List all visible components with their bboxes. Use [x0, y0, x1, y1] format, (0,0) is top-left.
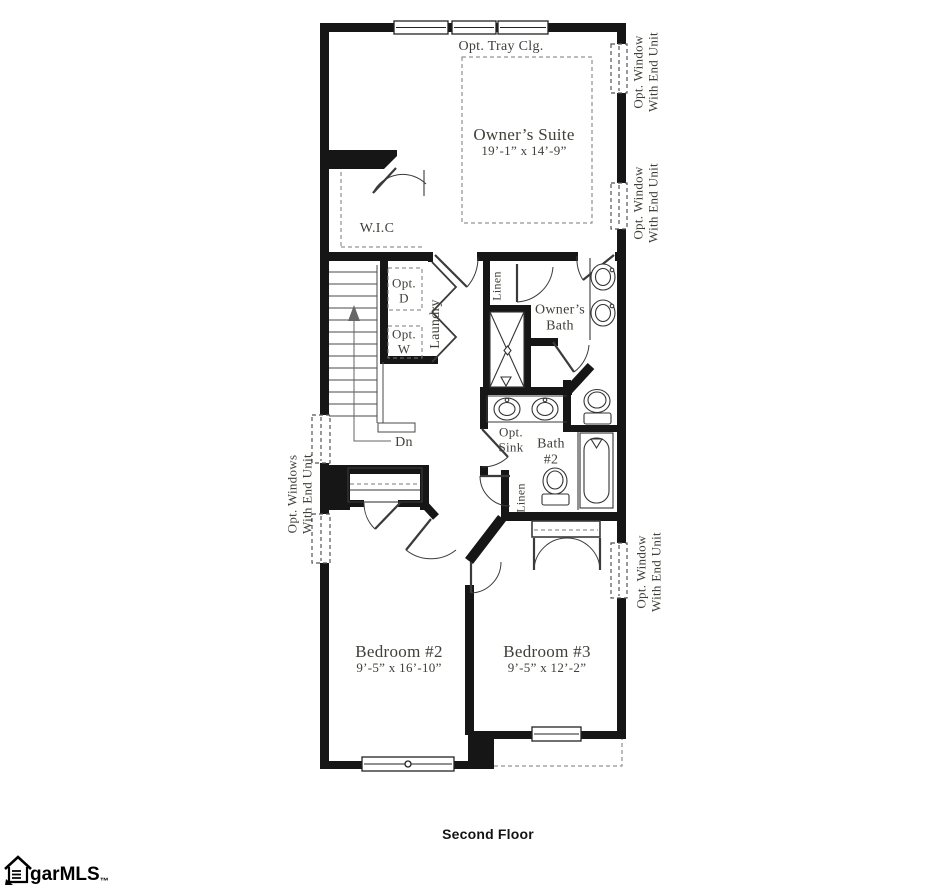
label-line: Opt. [392, 276, 416, 291]
opt-dryer-label: Opt. D [392, 276, 416, 305]
label-line: D [392, 291, 416, 306]
label-line: Opt. Window [634, 532, 649, 612]
room-name: Bedroom #3 [503, 642, 591, 661]
stairs-down-label: Dn [395, 435, 413, 451]
owners-suite-label: Owner’s Suite 19’-1” x 14’-9” [473, 125, 574, 159]
label-line: Opt. Window [631, 32, 646, 112]
owners-bath-sinks [591, 264, 615, 326]
bath2-sinks [494, 398, 558, 420]
bath2-label: Bath #2 [537, 436, 565, 467]
label-line: Owner’s [535, 302, 585, 318]
label-line: #2 [537, 452, 565, 468]
mls-brand-text: garMLS [30, 864, 100, 886]
room-dims: 9’-5” x 16’-10” [355, 661, 443, 676]
opt-window-right-top-label: Opt. Window With End Unit [631, 32, 660, 112]
room-dims: 19’-1” x 14’-9” [473, 144, 574, 159]
owners-bath-label: Owner’s Bath [535, 302, 585, 333]
floor-plan-page: Opt. Tray Clg. Owner’s Suite 19’-1” x 14… [0, 0, 937, 889]
floor-plan-drawing [0, 0, 937, 889]
owners-bath-toilet [584, 390, 611, 425]
opt-sink-label: Opt. Sink [498, 425, 523, 454]
shower [490, 312, 524, 387]
label-line: Opt. [392, 327, 416, 342]
linen-lower-label: Linen [514, 483, 527, 513]
opt-washer-label: Opt. W [392, 327, 416, 356]
label-line: Opt. Window [631, 163, 646, 243]
label-line: With End Unit [300, 454, 315, 534]
bedroom3-label: Bedroom #3 9’-5” x 12’-2” [503, 642, 591, 676]
bedroom2-label: Bedroom #2 9’-5” x 16’-10” [355, 642, 443, 676]
bath2-toilet [542, 468, 569, 505]
room-name: Owner’s Suite [473, 125, 574, 144]
room-name: Bedroom #2 [355, 642, 443, 661]
label-line: Opt. [498, 425, 523, 440]
laundry-label: Laundry [428, 299, 444, 349]
label-line: Sink [498, 440, 523, 455]
room-dims: 9’-5” x 12’-2” [503, 661, 591, 676]
tray-ceiling-label: Opt. Tray Clg. [458, 39, 543, 55]
label-line: Bath [537, 436, 565, 452]
label-line: Bath [535, 318, 585, 334]
opt-window-right-bottom-label: Opt. Window With End Unit [634, 532, 663, 612]
label-line: Opt. Windows [285, 454, 300, 534]
opt-window-right-mid-label: Opt. Window With End Unit [631, 163, 660, 243]
label-line: W [392, 342, 416, 357]
mls-watermark: garMLS™ [2, 854, 109, 886]
trademark-symbol: ™ [100, 876, 109, 886]
wic-label: W.I.C [360, 221, 394, 237]
label-line: With End Unit [649, 532, 664, 612]
opt-windows-left-label: Opt. Windows With End Unit [285, 454, 314, 534]
linen-upper-label: Linen [490, 271, 503, 301]
label-line: With End Unit [646, 32, 661, 112]
bathtub [580, 433, 613, 508]
floor-title: Second Floor [442, 827, 534, 843]
label-line: With End Unit [646, 163, 661, 243]
